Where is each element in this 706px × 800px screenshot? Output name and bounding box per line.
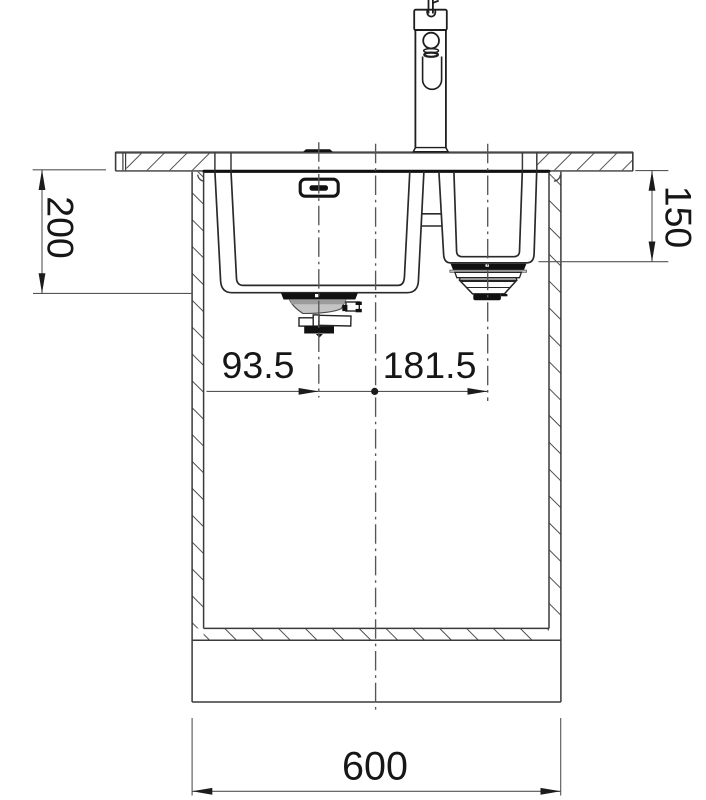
svg-text:93.5: 93.5 <box>222 344 295 386</box>
svg-text:181.5: 181.5 <box>383 344 477 386</box>
svg-text:200: 200 <box>40 196 82 259</box>
svg-text:150: 150 <box>658 186 700 249</box>
svg-text:600: 600 <box>342 745 408 789</box>
